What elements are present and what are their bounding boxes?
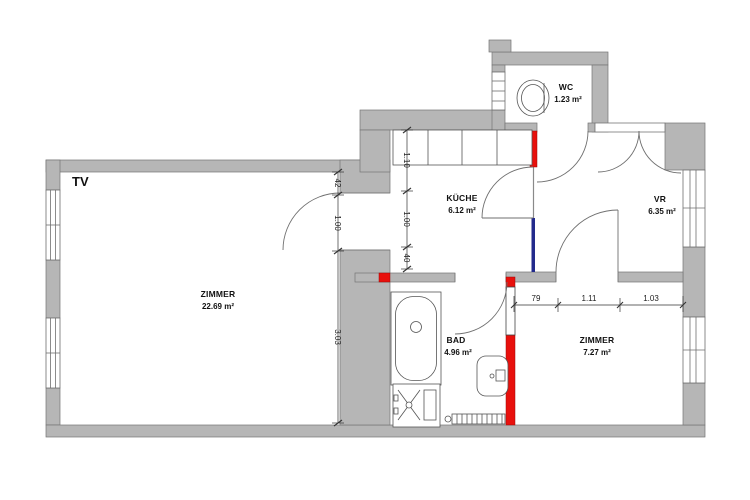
wall-left-seg2 xyxy=(46,260,60,318)
room-zimmer2-name: ZIMMER xyxy=(580,335,615,345)
room-wc-area: 1.23 m² xyxy=(554,95,582,104)
marked-wall-blue xyxy=(532,218,536,272)
walls xyxy=(46,40,705,437)
room-wc-name: WC xyxy=(559,82,574,92)
wall-zimmer1-top xyxy=(46,160,360,172)
wall-stair-stub xyxy=(489,40,511,52)
dim-label-40: 40 xyxy=(402,254,411,263)
wall-right-mid xyxy=(683,247,705,317)
wall-wc-top xyxy=(492,52,608,65)
room-bad-name: BAD xyxy=(446,335,465,345)
sink xyxy=(477,356,508,396)
door-entry-left-leaf xyxy=(598,131,639,172)
dim-label-103: 1.03 xyxy=(643,294,659,303)
wall-kueche-left-connector xyxy=(360,130,390,172)
dim-label-111: 1.11 xyxy=(582,294,598,303)
room-vr-area: 6.35 m² xyxy=(648,207,676,216)
window-zimmer1-lower xyxy=(46,318,60,388)
wall-bad-top xyxy=(355,273,455,282)
dim-label-42: 42 xyxy=(333,179,342,188)
plan-title: TV xyxy=(72,174,89,189)
wall-kueche-top xyxy=(360,110,500,130)
wall-wc-bottom-seg2 xyxy=(588,123,595,132)
toilet xyxy=(517,80,549,116)
red-wall-bad-top xyxy=(379,273,390,282)
door-bad xyxy=(455,282,507,334)
room-vr-name: VR xyxy=(654,194,666,204)
dim-label-100-kueche: 1.00 xyxy=(402,211,411,227)
dim-label-303: 3.03 xyxy=(333,329,342,345)
wall-vr-entry-thin xyxy=(595,123,665,132)
wall-top-right-corner xyxy=(665,123,705,170)
dim-label-100-zimmer: 1.00 xyxy=(333,215,342,231)
floor-plan-page: TV ZIMMER 22.69 m² KÜCHE 6.12 m² VR 6.35… xyxy=(0,0,750,500)
room-zimmer1-area: 22.69 m² xyxy=(202,302,234,311)
room-zimmer2-area: 7.27 m² xyxy=(583,348,611,357)
radiator xyxy=(445,414,505,424)
room-bad-area: 4.96 m² xyxy=(444,348,472,357)
door-kueche xyxy=(482,167,533,218)
window-zimmer2-right xyxy=(683,317,705,383)
floor-plan: TV ZIMMER 22.69 m² KÜCHE 6.12 m² VR 6.35… xyxy=(0,0,750,500)
wall-zimmer2-top-seg2 xyxy=(618,272,683,282)
door-zimmer2 xyxy=(556,210,618,272)
room-kueche-area: 6.12 m² xyxy=(448,206,476,215)
window-wc-left xyxy=(492,72,505,110)
door-wc xyxy=(537,131,588,182)
bathtub xyxy=(391,292,441,385)
wall-left-seg3 xyxy=(46,388,60,425)
window-vr-right xyxy=(683,170,705,247)
room-kueche-name: KÜCHE xyxy=(446,193,477,203)
dim-label-110: 1.10 xyxy=(402,152,411,168)
room-zimmer1-name: ZIMMER xyxy=(201,289,236,299)
wall-wc-left-seg1 xyxy=(492,65,505,72)
door-zimmer1 xyxy=(283,193,340,250)
window-zimmer1-upper xyxy=(46,190,60,260)
dim-label-79: 79 xyxy=(532,294,541,303)
vanity-unit xyxy=(393,384,440,427)
fixtures xyxy=(391,80,549,427)
wall-wc-right xyxy=(592,65,608,132)
wall-wc-left-seg2 xyxy=(492,110,505,132)
kitchen-cabinets xyxy=(393,130,532,165)
wall-bottom xyxy=(46,425,705,437)
wall-left-seg1 xyxy=(46,160,60,190)
wall-right-low xyxy=(683,383,705,425)
